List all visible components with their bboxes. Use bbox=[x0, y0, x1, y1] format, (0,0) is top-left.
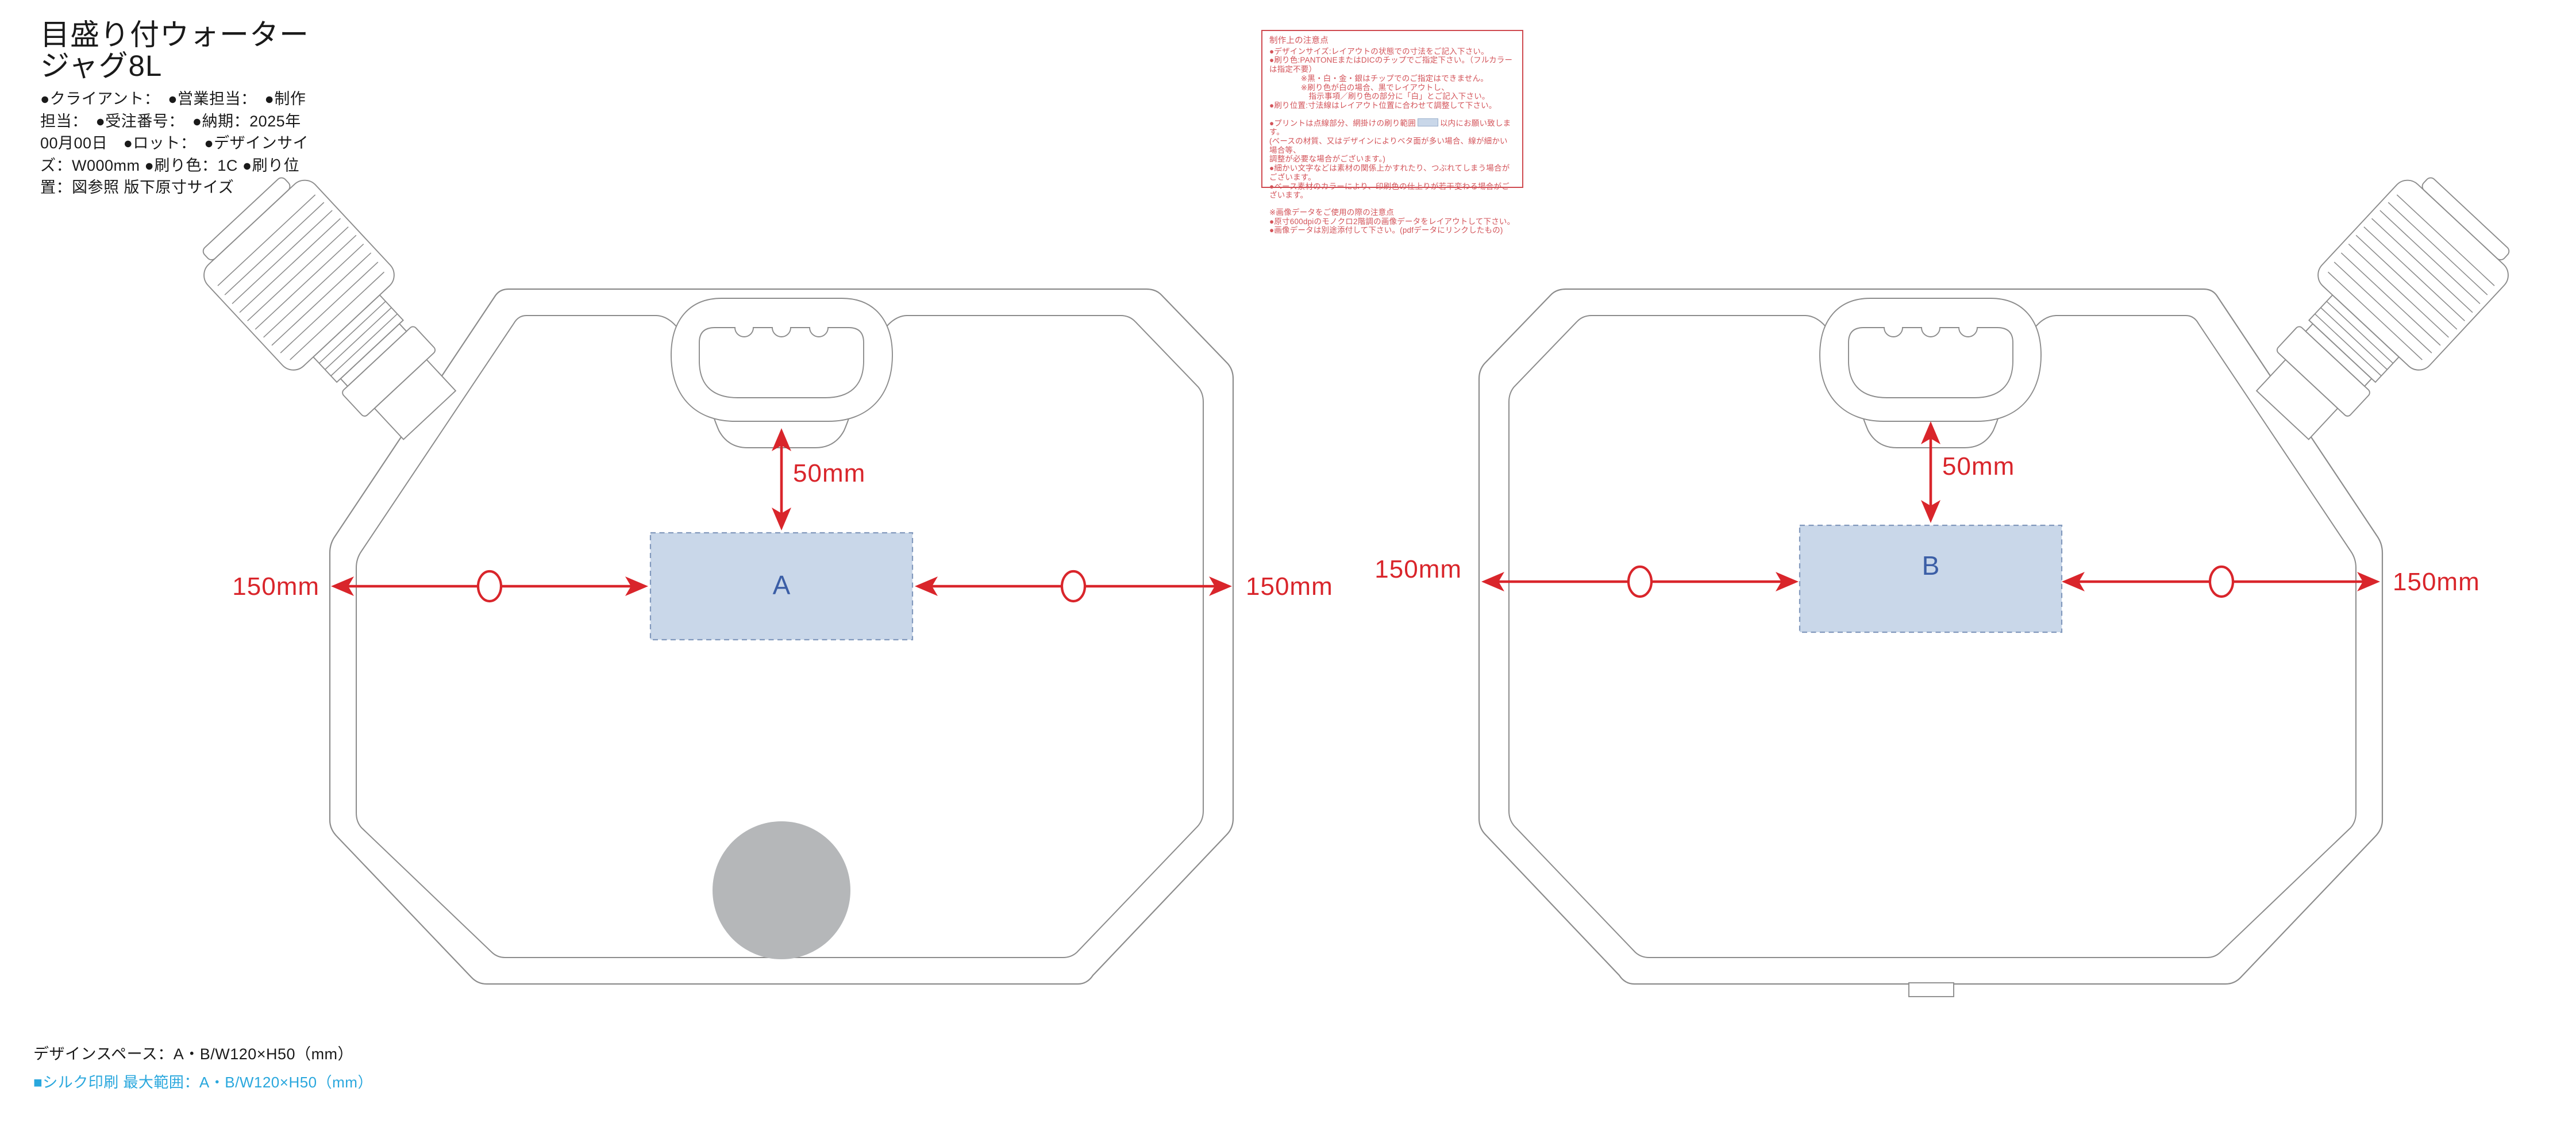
design-space-note: デザインスペース：A・B/W120×H50（mm） bbox=[33, 1041, 373, 1064]
note-line: 指示事項／刷り色の部分に「白」とご記入下さい。 bbox=[1269, 92, 1515, 101]
spec-header: 目盛り付ウォータージャグ8L ●クライアント： ●営業担当： ●制作担当： ●受… bbox=[40, 20, 315, 199]
note-line: ※画像データをご使用の際の注意点 bbox=[1269, 208, 1515, 217]
note-line: ●刷り位置:寸法線はレイアウト位置に合わせて調整して下さい。 bbox=[1269, 101, 1515, 110]
dim-label-b-right: 150mm bbox=[2393, 568, 2480, 596]
note-line: 調整が必要な場合がございます。) bbox=[1269, 155, 1515, 164]
dim-label-a-right: 150mm bbox=[1246, 572, 1333, 601]
page-title: 目盛り付ウォータージャグ8L bbox=[40, 20, 315, 81]
bottom-circle-marker bbox=[713, 821, 850, 959]
dim-label-a-top: 50mm bbox=[793, 459, 865, 487]
note-line: ※黒・白・金・銀はチップでのご指定はできません。 bbox=[1269, 74, 1515, 83]
note-line: (ベースの材質、又はデザインによりベタ面が多い場合、線が細かい場合等、 bbox=[1269, 137, 1515, 155]
design-space-a-label: A bbox=[773, 570, 791, 600]
notes-title: 制作上の注意点 bbox=[1269, 37, 1515, 46]
note-line: ●細かい文字などは素材の関係上かすれたり、つぶれてしまう場合がございます。 bbox=[1269, 164, 1515, 182]
production-notes-box: 制作上の注意点 ●デザインサイズ:レイアウトの状態での寸法をご記入下さい。 ●刷… bbox=[1261, 30, 1523, 188]
note-line: ●原寸600dpiのモノクロ2階調の画像データをレイアウトして下さい。 bbox=[1269, 217, 1515, 226]
note-line: ※刷り色が白の場合、黒でレイアウトし、 bbox=[1269, 83, 1515, 93]
note-line: ●画像データは別途添付して下さい。(pdfデータにリンクしたもの) bbox=[1269, 226, 1515, 235]
design-space-footer: デザインスペース：A・B/W120×H50（mm） ■シルク印刷 最大範囲：A・… bbox=[33, 1041, 373, 1092]
note-line: ●デザインサイズ:レイアウトの状態での寸法をご記入下さい。 bbox=[1269, 47, 1515, 56]
print-range-text-before: ●プリントは点線部分、網掛けの刷り範囲 bbox=[1269, 119, 1416, 128]
dim-label-b-left: 150mm bbox=[1374, 555, 1462, 583]
note-line: ●ベース素材のカラーにより、印刷色の仕上りが若干変わる場合がございます。 bbox=[1269, 182, 1515, 200]
order-meta-text: ●クライアント： ●営業担当： ●制作担当： ●受注番号： ●納期：2025年0… bbox=[40, 88, 315, 199]
silk-print-note: ■シルク印刷 最大範囲：A・B/W120×H50（mm） bbox=[33, 1071, 373, 1092]
design-space-b-label: B bbox=[1922, 551, 1940, 580]
print-area-swatch-icon bbox=[1418, 118, 1438, 126]
bottom-tab bbox=[1909, 983, 1954, 997]
dim-label-a-left: 150mm bbox=[232, 572, 319, 601]
dim-label-b-top: 50mm bbox=[1942, 452, 2015, 480]
note-line: ●刷り色:PANTONEまたはDICのチップでご指定下さい。（フルカラーは指定不… bbox=[1269, 56, 1515, 74]
note-line-print-range: ●プリントは点線部分、網掛けの刷り範囲以内にお願い致します。 bbox=[1269, 118, 1515, 137]
